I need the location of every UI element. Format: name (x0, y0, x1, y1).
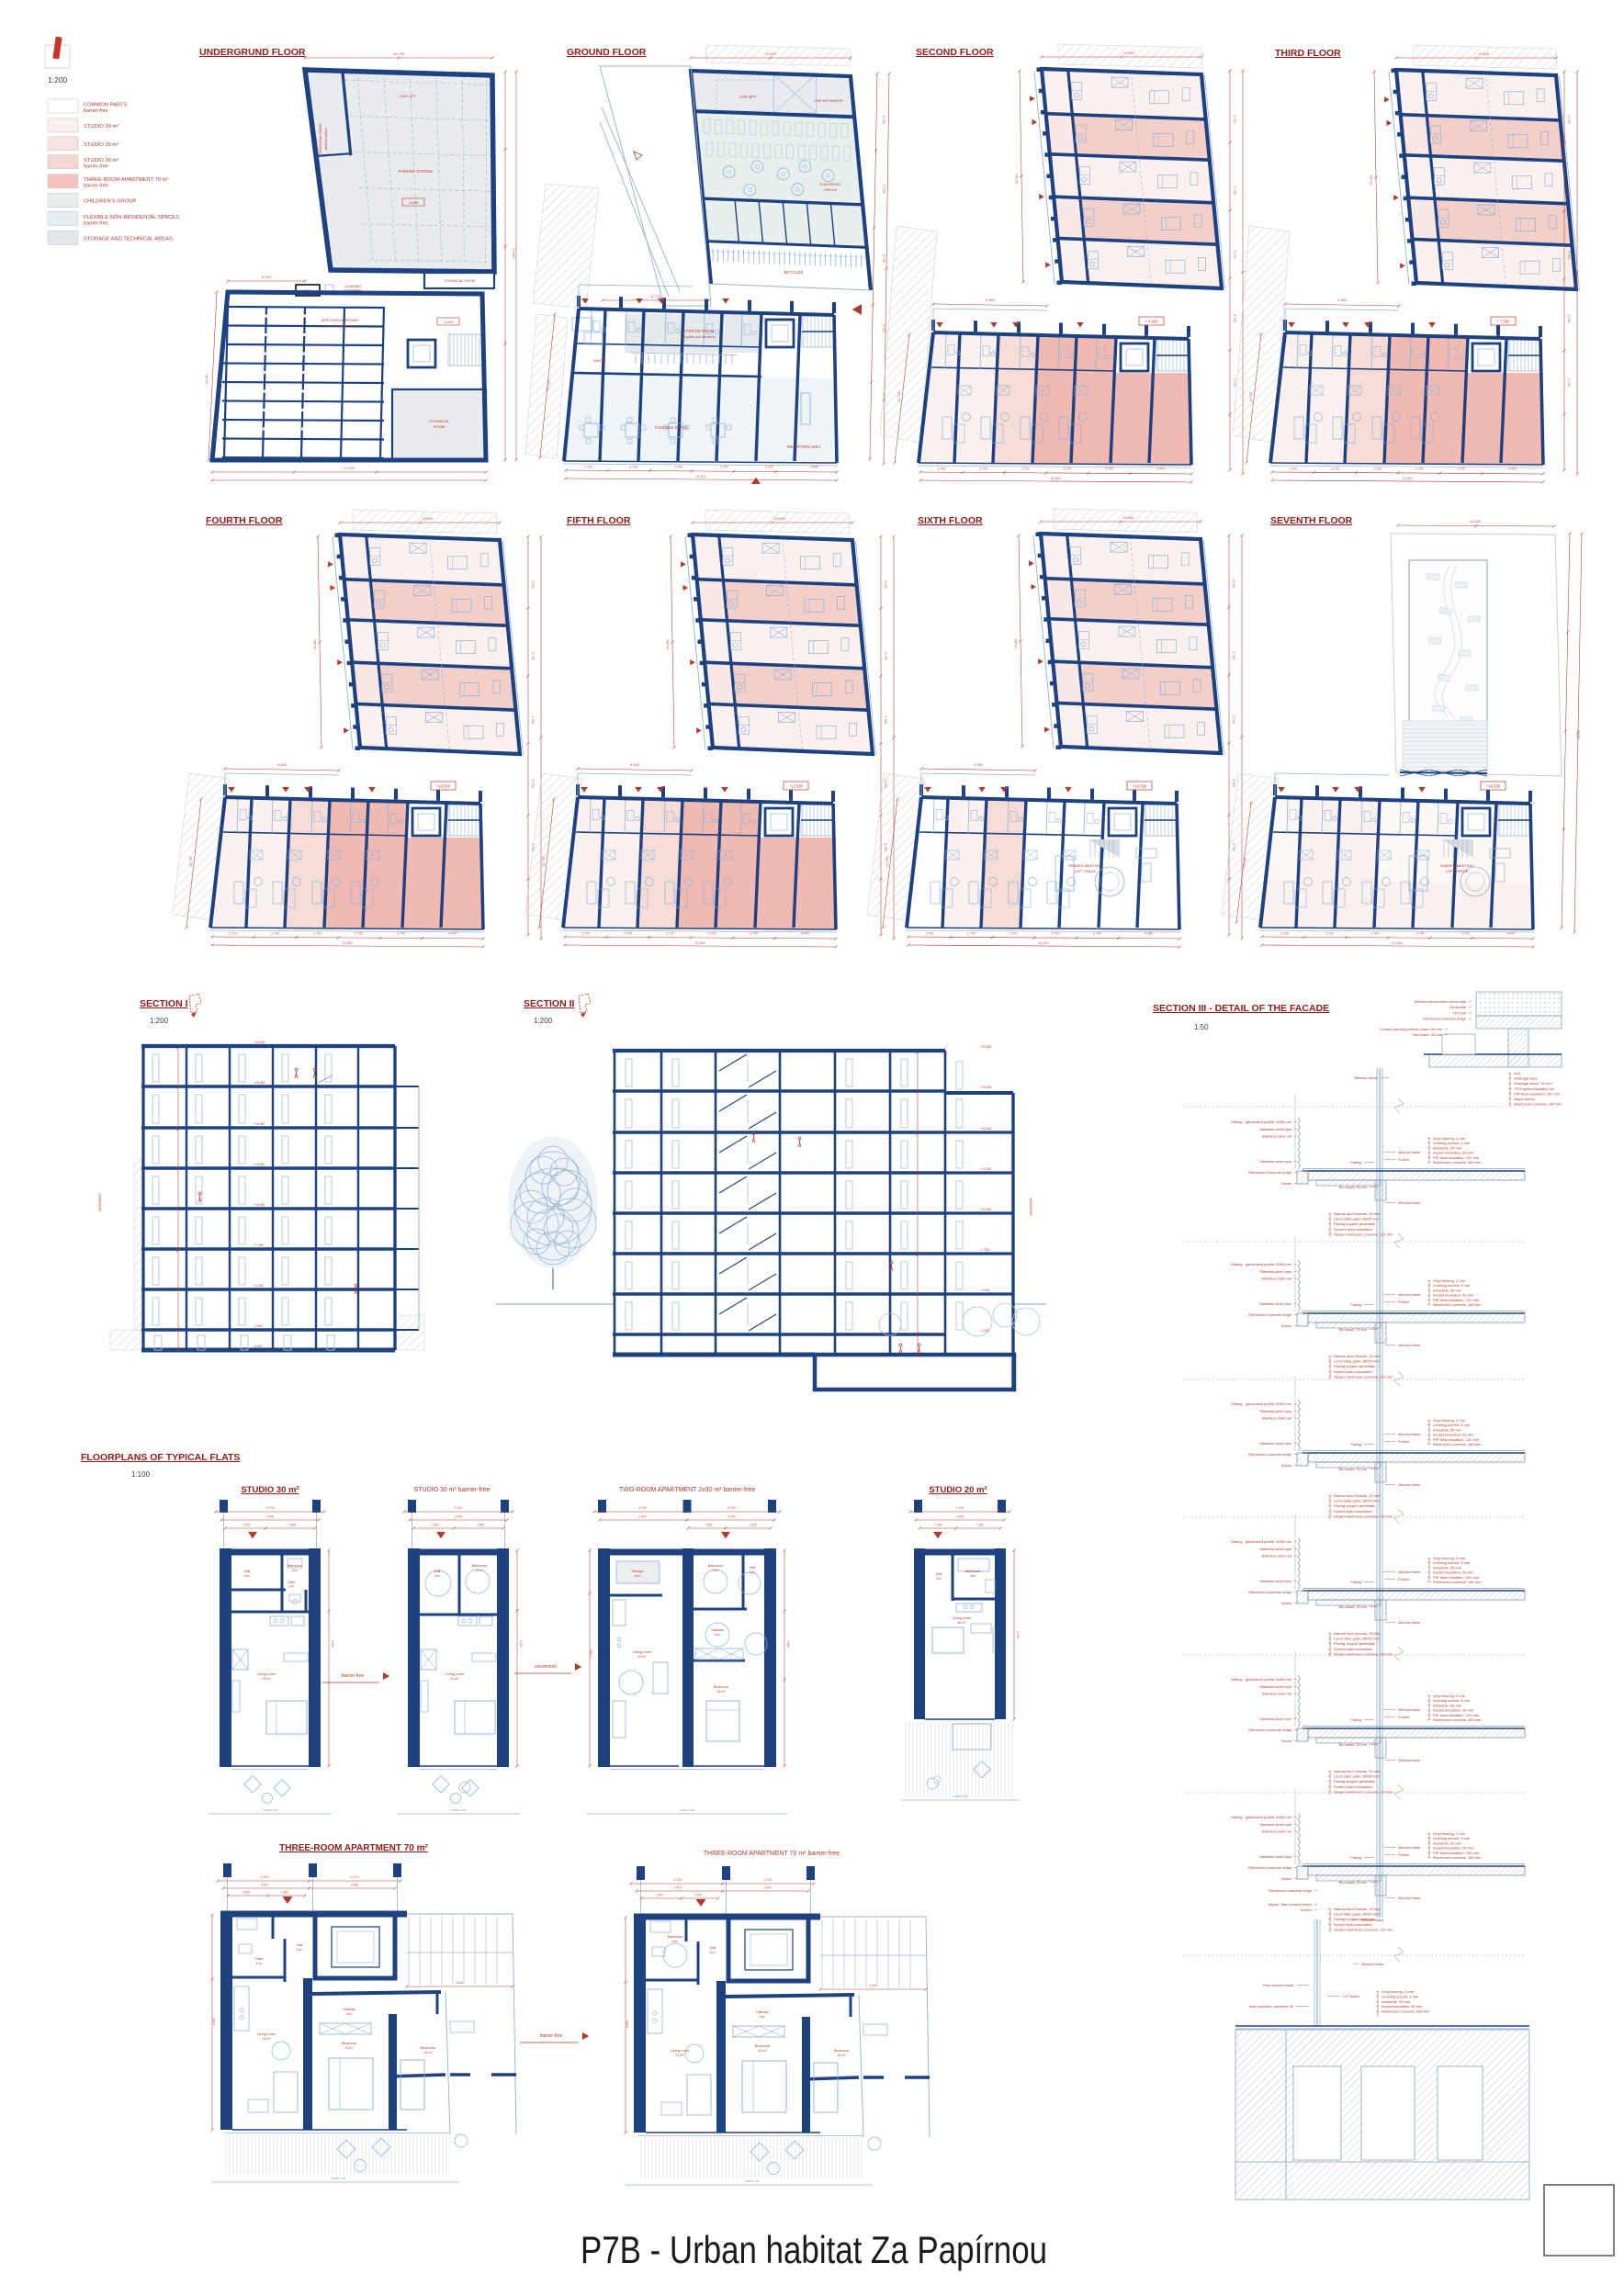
svg-text:+7.300: +7.300 (254, 1244, 264, 1247)
svg-text:3 m²: 3 m² (434, 1574, 442, 1578)
svg-text:Soil: Soil (1514, 1071, 1520, 1075)
svg-text:1.800: 1.800 (656, 1894, 663, 1897)
svg-text:THREE-ROOM APARTMENT 70 m²: THREE-ROOM APARTMENT 70 m² (279, 1843, 428, 1853)
svg-text:3.700: 3.700 (764, 1878, 773, 1882)
svg-text:Reinforced concrete ledge: Reinforced concrete ledge (1248, 1590, 1291, 1594)
svg-text:LOFT SPACE: LOFT SPACE (1446, 869, 1469, 873)
svg-text:14 m²: 14 m² (758, 2049, 767, 2053)
svg-text:Window frame: Window frame (1398, 1759, 1420, 1762)
svg-text:3.700: 3.700 (629, 466, 637, 469)
svg-text:Window frame: Window frame (1398, 1570, 1420, 1574)
svg-text:CHILDREN'S GROUP: CHILDREN'S GROUP (84, 199, 137, 205)
svg-text:CAR LIFT: CAR LIFT (739, 95, 757, 99)
svg-text:13.705: 13.705 (897, 392, 901, 402)
svg-text:22.900: 22.900 (1393, 941, 1403, 945)
svg-text:+13.580: +13.580 (789, 784, 804, 789)
svg-text:LOFT SPACE: LOFT SPACE (1074, 869, 1097, 873)
svg-text:2.615: 2.615 (869, 1984, 876, 1987)
svg-text:TPO hydro-insulation foil: TPO hydro-insulation foil (1514, 1086, 1554, 1091)
svg-text:3.700: 3.700 (1021, 467, 1030, 471)
svg-text:4 m²: 4 m² (710, 1951, 717, 1954)
svg-text:3.700: 3.700 (882, 324, 885, 332)
svg-text:4.450: 4.450 (1016, 1631, 1020, 1638)
svg-text:19.330: 19.330 (1576, 730, 1580, 740)
svg-text:Window frame: Window frame (1398, 1483, 1420, 1487)
svg-text:14.060: 14.060 (205, 374, 209, 384)
svg-text:3.400: 3.400 (266, 1515, 275, 1519)
svg-text:3.700: 3.700 (1461, 932, 1470, 936)
svg-text:16 m²: 16 m² (957, 1621, 966, 1625)
svg-text:3.700: 3.700 (266, 1506, 275, 1510)
svg-text:PIR heat insulation, 200 mm: PIR heat insulation, 200 mm (1514, 1091, 1561, 1096)
svg-text:21.060: 21.060 (1015, 174, 1019, 185)
svg-text:Heat insulation, perimeter 50: Heat insulation, perimeter 50 (1248, 2005, 1293, 2009)
svg-text:3.700: 3.700 (1567, 187, 1571, 196)
svg-text:4 m²: 4 m² (713, 1569, 720, 1572)
svg-text:13.705: 13.705 (189, 857, 193, 867)
svg-text:Window frame: Window frame (1398, 1151, 1420, 1154)
svg-text:4.400: 4.400 (801, 932, 809, 936)
svg-text:3.700: 3.700 (351, 1875, 359, 1879)
svg-text:barrier-free: barrier-free (342, 1673, 365, 1679)
svg-text:RECEPTION AREA: RECEPTION AREA (787, 445, 821, 449)
svg-text:8.745: 8.745 (651, 294, 661, 298)
svg-text:FLOORPLANS OF TYPICAL FLATS: FLOORPLANS OF TYPICAL FLATS (81, 1452, 240, 1463)
svg-text:Topper- fiber cement board: Topper- fiber cement board (1268, 1902, 1312, 1907)
svg-text:STUDIO 30 m²: STUDIO 30 m² (241, 1485, 299, 1495)
svg-text:Stainless steel rope: Stainless steel rope (1259, 1127, 1292, 1131)
svg-text:21.060: 21.060 (666, 640, 670, 650)
svg-text:Stainless steel rope: Stainless steel rope (1259, 1579, 1292, 1583)
svg-text:13.600: 13.600 (1478, 51, 1490, 56)
svg-text:1 m²: 1 m² (256, 1962, 264, 1965)
svg-text:Paving support pedestals: Paving support pedestals (1334, 1641, 1375, 1646)
svg-text:3.700: 3.700 (1416, 932, 1425, 936)
svg-text:1.500: 1.500 (935, 1524, 942, 1527)
svg-text:Bedroom: Bedroom (421, 2045, 436, 2050)
svg-text:WASTE: WASTE (593, 358, 606, 363)
svg-text:CAR LIFT: CAR LIFT (400, 94, 416, 98)
svg-text:Vapor barrier: Vapor barrier (1514, 1097, 1536, 1101)
svg-text:-1.000: -1.000 (254, 1324, 263, 1328)
svg-text:3.700: 3.700 (1457, 467, 1465, 471)
svg-text:Eaves: Eaves (1281, 1463, 1291, 1468)
svg-text:3.700: 3.700 (674, 1878, 682, 1882)
svg-text:Plating: Plating (1350, 1581, 1361, 1584)
svg-text:Reinforced concrete ledge: Reinforced concrete ledge (1248, 1312, 1291, 1317)
svg-text:22.900: 22.900 (696, 475, 706, 478)
svg-text:25 m²: 25 m² (637, 1655, 647, 1659)
svg-text:Sloped reinforced concrete, 12: Sloped reinforced concrete, 120 mm (1334, 1927, 1393, 1931)
svg-text:P7B - Urban habitat Za Papírno: P7B - Urban habitat Za Papírnou (581, 2228, 1047, 2271)
svg-text:Reinforced concrete, 180 mm: Reinforced concrete, 180 mm (1433, 1855, 1482, 1860)
svg-text:Stainless steel net: Stainless steel net (1262, 1416, 1292, 1421)
svg-text:Eaves: Eaves (1281, 1739, 1291, 1743)
svg-text:3.700: 3.700 (1233, 314, 1236, 322)
svg-text:3.700: 3.700 (1280, 932, 1289, 936)
svg-text:Window frame: Window frame (1361, 1919, 1383, 1922)
svg-text:1 m²: 1 m² (288, 1585, 294, 1589)
svg-text:21.060: 21.060 (1370, 175, 1373, 186)
svg-text:22.900: 22.900 (1039, 941, 1049, 945)
svg-text:4 m²: 4 m² (672, 1940, 680, 1943)
svg-text:3.700: 3.700 (1009, 932, 1018, 936)
svg-text:Reinforced concrete ledge: Reinforced concrete ledge (1423, 1017, 1466, 1021)
svg-text:Bathroom: Bathroom (708, 1564, 723, 1568)
svg-text:9.365: 9.365 (630, 762, 640, 767)
svg-text:+10.300: +10.300 (254, 1203, 265, 1207)
svg-text:9.365: 9.365 (974, 762, 984, 767)
svg-text:Purenit: Purenit (1398, 1578, 1410, 1581)
svg-text:8.100: 8.100 (626, 2020, 629, 2028)
svg-text:Hallway: Hallway (711, 1628, 723, 1632)
svg-text:Bio-board, 25 mm: Bio-board, 25 mm (1339, 1605, 1367, 1609)
svg-text:4.400: 4.400 (1145, 932, 1153, 936)
svg-text:4 m²: 4 m² (477, 1569, 484, 1572)
svg-text:Cement bonded particle board,: Cement bonded particle board, 30 mm (1380, 1027, 1443, 1031)
svg-text:Reinforced concrete, 240 mm: Reinforced concrete, 240 mm (1514, 1102, 1562, 1107)
svg-text:4.900: 4.900 (786, 1640, 790, 1648)
svg-text:Hallway: Hallway (756, 2010, 768, 2014)
svg-text:13.600: 13.600 (1122, 515, 1134, 520)
svg-text:Sloped reinforced concrete, 12: Sloped reinforced concrete, 120 mm (1334, 1232, 1393, 1236)
svg-text:Eaves: Eaves (1281, 1181, 1291, 1186)
svg-text:Reinforced concrete, 180 mm: Reinforced concrete, 180 mm (1433, 1442, 1482, 1446)
svg-text:Bio-board, 25 mm: Bio-board, 25 mm (1339, 1743, 1367, 1747)
svg-text:Drainage stone, 50 mm: Drainage stone, 50 mm (1514, 1081, 1552, 1086)
svg-text:+16.560: +16.560 (1133, 784, 1147, 789)
svg-text:7.150: 7.150 (590, 1649, 593, 1657)
svg-text:Natural larch boards, 25 mm: Natural larch boards, 25 mm (1334, 1907, 1381, 1911)
svg-text:3.400: 3.400 (956, 1515, 964, 1519)
svg-text:+7.300: +7.300 (980, 1248, 990, 1252)
svg-text:+10.600: +10.600 (436, 784, 451, 789)
svg-text:Stainless steel net: Stainless steel net (1262, 1134, 1292, 1139)
svg-text:1.800: 1.800 (976, 1524, 984, 1527)
svg-text:Window frame: Window frame (1398, 1846, 1420, 1850)
svg-text:STREET LINE: STREET LINE (744, 2179, 760, 2183)
svg-text:4.400: 4.400 (1506, 932, 1515, 936)
svg-text:3.700: 3.700 (1567, 251, 1571, 259)
svg-text:+19.300: +19.300 (980, 1086, 991, 1089)
svg-text:3.700: 3.700 (1567, 378, 1571, 387)
svg-text:+16.300: +16.300 (254, 1122, 265, 1126)
svg-text:3.700: 3.700 (1232, 779, 1235, 787)
svg-text:THREE-ROOM APARTMENT 70 m²: THREE-ROOM APARTMENT 70 m² (84, 177, 169, 183)
svg-text:Plating: Plating (1350, 1161, 1361, 1165)
svg-text:3.400: 3.400 (674, 1886, 682, 1890)
svg-text:3.700: 3.700 (584, 466, 592, 469)
svg-text:5 m²: 5 m² (760, 2015, 767, 2019)
svg-text:3.400: 3.400 (727, 1515, 736, 1519)
svg-text:+13.300: +13.300 (980, 1167, 991, 1171)
svg-text:Screed hydro-insulation: Screed hydro-insulation (1334, 1784, 1372, 1789)
svg-text:3.700: 3.700 (750, 932, 758, 936)
svg-text:Leveling screed, 3 mm: Leveling screed, 3 mm (1382, 1994, 1419, 1998)
svg-text:Bedroom: Bedroom (714, 1684, 729, 1689)
svg-text:16.755: 16.755 (393, 51, 405, 56)
svg-text:+10.300: +10.300 (980, 1208, 991, 1211)
svg-text:3.700: 3.700 (956, 1506, 964, 1510)
svg-text:ROOM: ROOM (434, 424, 445, 429)
svg-text:SIXTH FLOOR: SIXTH FLOOR (918, 515, 983, 526)
svg-text:Larch slats grate, 60/60 mm: Larch slats grate, 60/60 mm (1334, 1637, 1380, 1641)
svg-text:SECTION III - DETAIL OF THE FA: SECTION III - DETAIL OF THE FACADE (1153, 1003, 1329, 1014)
svg-text:Bathroom: Bathroom (668, 1935, 682, 1939)
svg-text:3.700: 3.700 (1232, 651, 1235, 659)
svg-text:STREET LINE: STREET LINE (451, 1808, 467, 1812)
svg-text:Living room: Living room (445, 1671, 465, 1676)
svg-text:Stainless steel rope: Stainless steel rope (1259, 1409, 1292, 1413)
svg-text:3.700: 3.700 (638, 1506, 647, 1510)
svg-text:NEIGHBOUR: NEIGHBOUR (1029, 1198, 1032, 1216)
svg-text:2 m²: 2 m² (292, 1569, 299, 1572)
svg-text:8.100: 8.100 (212, 2018, 216, 2025)
svg-text:Natural larch boards, 25 mm: Natural larch boards, 25 mm (1334, 1211, 1381, 1216)
svg-text:(bicycles and strollers): (bicycles and strollers) (681, 335, 716, 339)
svg-text:2.615: 2.615 (456, 1981, 463, 1985)
svg-text:Window frame: Window frame (1398, 1708, 1420, 1712)
svg-text:9.365: 9.365 (986, 298, 996, 302)
svg-text:3.700: 3.700 (1567, 116, 1571, 124)
svg-text:3.700: 3.700 (1370, 932, 1379, 936)
svg-text:6.900: 6.900 (331, 1640, 334, 1648)
svg-text:GROUP: GROUP (824, 187, 838, 192)
svg-text:21.060: 21.060 (1014, 639, 1018, 649)
svg-text:4 m²: 4 m² (297, 1948, 304, 1952)
svg-text:4.400: 4.400 (1156, 467, 1165, 471)
svg-text:Bedroom: Bedroom (342, 2041, 357, 2045)
svg-text:3.700: 3.700 (937, 467, 945, 471)
svg-text:Stainless steel net: Stainless steel net (1262, 1554, 1292, 1559)
svg-text:+ 7.590: + 7.590 (1496, 320, 1510, 324)
svg-text:23.960: 23.960 (512, 249, 515, 259)
svg-text:Purenit: Purenit (1398, 1853, 1410, 1857)
svg-text:+23.000: +23.000 (254, 1041, 265, 1044)
svg-text:Screed hydro-insulation: Screed hydro-insulation (1334, 1922, 1372, 1927)
svg-text:3.700: 3.700 (925, 932, 933, 936)
svg-text:3.700: 3.700 (674, 466, 682, 469)
svg-text:4 m²: 4 m² (244, 1574, 252, 1578)
svg-text:21.060: 21.060 (313, 640, 317, 650)
svg-text:Stainless steel rope: Stainless steel rope (1259, 1269, 1292, 1274)
svg-text:Bio-board, 25 mm: Bio-board, 25 mm (1339, 1468, 1367, 1471)
svg-text:Reinforced concrete ledge: Reinforced concrete ledge (1269, 1888, 1312, 1893)
svg-text:Bio-board, 25 mm: Bio-board, 25 mm (1413, 1032, 1442, 1037)
svg-text:SECOND FLOOR: SECOND FLOOR (916, 47, 994, 58)
svg-text:45 STORAGE ROOMS: 45 STORAGE ROOMS (321, 318, 359, 322)
svg-text:FIFTH FLOOR: FIFTH FLOOR (567, 515, 631, 526)
svg-text:Bathroom: Bathroom (965, 1570, 980, 1573)
svg-text:CAR ENTRANCE: CAR ENTRANCE (814, 98, 843, 103)
svg-text:1:200: 1:200 (534, 1017, 553, 1025)
svg-text:Screed hydro-insulation: Screed hydro-insulation (1334, 1369, 1372, 1374)
svg-text:FOURTH FLOOR: FOURTH FLOOR (206, 515, 283, 526)
svg-text:NEIGHBOUR: NEIGHBOUR (98, 1193, 102, 1211)
svg-text:13.600: 13.600 (1123, 51, 1135, 55)
svg-text:22.900: 22.900 (695, 941, 705, 945)
svg-text:Hall: Hall (710, 1946, 716, 1950)
svg-text:Bio-board, 25 mm: Bio-board, 25 mm (1339, 1328, 1367, 1332)
svg-text:TWO-ROOM APARTMENT 2x30 m² bar: TWO-ROOM APARTMENT 2x30 m² barrier-free (619, 1487, 755, 1493)
svg-text:3.700: 3.700 (531, 580, 535, 589)
svg-text:Railing - galvanized profile 1: Railing - galvanized profile 10/60 mm (1231, 1815, 1291, 1819)
svg-text:5.910: 5.910 (262, 275, 272, 279)
svg-text:1:200: 1:200 (150, 1017, 169, 1025)
svg-text:21.400: 21.400 (344, 467, 355, 470)
svg-text:Eaves: Eaves (1281, 1876, 1291, 1881)
svg-text:3.700: 3.700 (1325, 932, 1334, 936)
svg-text:22.900: 22.900 (1051, 477, 1061, 480)
svg-text:barrier-free: barrier-free (84, 184, 108, 189)
svg-text:FLEXIBLE SPACE: FLEXIBLE SPACE (655, 425, 688, 430)
svg-text:+19.300: +19.300 (254, 1081, 265, 1085)
svg-text:STREET LINE: STREET LINE (331, 2177, 346, 2180)
svg-text:1.800: 1.800 (242, 1891, 250, 1895)
svg-text:Railing - galvanized profile 1: Railing - galvanized profile 10/60 mm (1231, 1262, 1291, 1266)
svg-text:4.400: 4.400 (448, 932, 457, 936)
svg-text:Paving support pedestals: Paving support pedestals (1334, 1503, 1375, 1508)
svg-text:21 m²: 21 m² (675, 2054, 684, 2057)
svg-text:3.400: 3.400 (351, 1884, 359, 1887)
svg-text:12.650: 12.650 (1470, 519, 1482, 523)
svg-text:TECHNICAL: TECHNICAL (429, 419, 450, 423)
svg-text:3.700: 3.700 (1233, 115, 1236, 123)
svg-text:Impact insulation, 50 mm: Impact insulation, 50 mm (1382, 2004, 1423, 2009)
svg-text:3.400: 3.400 (455, 1515, 463, 1519)
svg-text:+19.530: +19.530 (1486, 784, 1501, 789)
svg-text:Window frame: Window frame (1398, 1344, 1420, 1347)
svg-text:Railing - galvanized profile 1: Railing - galvanized profile 10/60 mm (1231, 1677, 1291, 1682)
svg-text:Stainless steel net: Stainless steel net (1262, 1692, 1292, 1696)
svg-text:Paving support pedestals: Paving support pedestals (1334, 1364, 1375, 1368)
svg-text:1:50: 1:50 (1194, 1023, 1209, 1031)
svg-text:+ 4.930: + 4.930 (1145, 320, 1158, 324)
svg-text:1.500: 1.500 (432, 1524, 439, 1527)
svg-text:16 m²: 16 m² (716, 1690, 726, 1694)
svg-text:23 m²: 23 m² (262, 1677, 271, 1681)
svg-text:Reinforced concrete, 330 mm: Reinforced concrete, 330 mm (1382, 2009, 1430, 2014)
svg-text:STUDIO 20 m²: STUDIO 20 m² (84, 124, 118, 129)
svg-text:THREE-ROOM APARTMENT 70 m² bar: THREE-ROOM APARTMENT 70 m² barrier-free (704, 1851, 840, 1857)
svg-text:STREET LINE: STREET LINE (680, 1808, 695, 1812)
svg-text:3.700: 3.700 (884, 580, 887, 589)
svg-text:Bio-board, 25 mm: Bio-board, 25 mm (1339, 1186, 1367, 1189)
svg-text:COMMON PARTS: COMMON PARTS (84, 103, 128, 108)
svg-text:Hall: Hall (244, 1570, 251, 1573)
svg-text:Geotextile: Geotextile (1449, 1005, 1467, 1009)
svg-text:3 m²: 3 m² (936, 1577, 943, 1581)
svg-text:Natural larch boards, 25 mm: Natural larch boards, 25 mm (1334, 1493, 1381, 1498)
svg-text:3.700: 3.700 (1052, 932, 1060, 936)
svg-text:3.700: 3.700 (884, 715, 887, 724)
svg-text:Paving support pedestals: Paving support pedestals (1334, 1779, 1375, 1784)
svg-text:Stainless steel rope: Stainless steel rope (1259, 1441, 1292, 1446)
svg-text:-4.250: -4.250 (408, 200, 419, 205)
svg-text:STREET LINE: STREET LINE (953, 1795, 968, 1798)
svg-text:Larch slats grate, 60/60 mm: Larch slats grate, 60/60 mm (1334, 1774, 1380, 1779)
svg-text:Reinforced concrete, 180 mm: Reinforced concrete, 180 mm (1433, 1302, 1482, 1307)
svg-text:Larch slats grate, 60/60 mm: Larch slats grate, 60/60 mm (1334, 1499, 1380, 1503)
svg-text:4.400: 4.400 (1508, 467, 1517, 471)
svg-text:conversion: conversion (535, 1664, 557, 1670)
svg-text:Sloped reinforced concrete, 12: Sloped reinforced concrete, 120 mm (1334, 1651, 1393, 1656)
svg-text:Reinforced concrete, 180 mm: Reinforced concrete, 180 mm (1433, 1580, 1482, 1584)
svg-text:1.500: 1.500 (694, 1894, 702, 1897)
svg-text:Sloped reinforced concrete, 12: Sloped reinforced concrete, 120 mm (1334, 1374, 1393, 1379)
svg-text:SECTION II: SECTION II (524, 998, 575, 1009)
svg-text:3.700: 3.700 (1064, 467, 1072, 471)
svg-text:Fiber cement board: Fiber cement board (1263, 1984, 1293, 1987)
svg-text:1:100: 1:100 (131, 1470, 151, 1479)
svg-text:Living room: Living room (633, 1649, 652, 1654)
svg-text:+13.300: +13.300 (254, 1163, 265, 1166)
svg-text:Paving support pedestals: Paving support pedestals (1334, 1221, 1375, 1226)
svg-text:PARKING SYSTEM: PARKING SYSTEM (399, 169, 433, 174)
svg-text:(incl. 30 barrier-free): (incl. 30 barrier-free) (325, 324, 355, 328)
svg-text:Reinforced concrete ledge: Reinforced concrete ledge (1248, 1170, 1291, 1175)
svg-text:-3.200: -3.200 (443, 320, 454, 324)
svg-text:13.705: 13.705 (542, 857, 546, 867)
svg-text:Bathroom: Bathroom (288, 1564, 302, 1568)
svg-text:1.800: 1.800 (705, 1524, 712, 1527)
svg-text:3.700: 3.700 (882, 254, 885, 263)
svg-text:14 m²: 14 m² (262, 2037, 271, 2041)
svg-text:Natural larch boards, 25 mm: Natural larch boards, 25 mm (1334, 1354, 1381, 1358)
svg-text:3.700: 3.700 (531, 652, 535, 660)
svg-text:3.700: 3.700 (979, 467, 987, 471)
svg-text:Drainage layer: Drainage layer (1514, 1076, 1539, 1081)
svg-text:Hall: Hall (297, 1943, 303, 1947)
svg-text:Purenit: Purenit (1398, 1300, 1410, 1304)
svg-text:Stainless steel rope: Stainless steel rope (1259, 1684, 1292, 1689)
svg-text:Larch slats grate, 60/60 mm: Larch slats grate, 60/60 mm (1334, 1912, 1380, 1917)
svg-text:Hallway: Hallway (343, 2008, 355, 2011)
svg-text:3.700: 3.700 (1093, 932, 1101, 936)
svg-text:Hall: Hall (434, 1570, 441, 1573)
svg-text:STORAGE ROOM: STORAGE ROOM (682, 329, 715, 333)
svg-text:1:200: 1:200 (48, 75, 68, 84)
svg-text:3.700: 3.700 (229, 932, 237, 936)
svg-text:Stainless steel net: Stainless steel net (1262, 1829, 1292, 1834)
svg-text:3.700: 3.700 (261, 1875, 269, 1879)
svg-text:3.700: 3.700 (1232, 715, 1235, 724)
svg-text:Railing - galvanized profile 1: Railing - galvanized profile 10/60 mm (1231, 1539, 1291, 1544)
svg-text:barrier-free: barrier-free (84, 220, 108, 226)
svg-text:STUDIO 30 m² barrier-free: STUDIO 30 m² barrier-free (414, 1487, 491, 1493)
svg-text:Purenit: Purenit (1398, 1716, 1410, 1719)
svg-text:3.700: 3.700 (581, 932, 590, 936)
svg-text:1.500: 1.500 (750, 1524, 757, 1527)
svg-text:3.700: 3.700 (455, 1506, 463, 1510)
svg-text:3.700: 3.700 (531, 780, 535, 788)
svg-text:22.900: 22.900 (1403, 477, 1413, 480)
svg-text:13.600: 13.600 (765, 51, 777, 56)
svg-text:1.800: 1.800 (288, 1524, 296, 1527)
svg-text:3.700: 3.700 (531, 715, 535, 724)
svg-text:Window frame: Window frame (1398, 1433, 1420, 1436)
svg-text:CLEANING: CLEANING (344, 285, 362, 288)
svg-text:Screed hydro-insulation: Screed hydro-insulation (1334, 1509, 1372, 1514)
svg-text:Window frame: Window frame (1398, 1293, 1420, 1297)
svg-text:Natural larch boards, 25 mm: Natural larch boards, 25 mm (1334, 1631, 1381, 1636)
svg-text:Hall: Hall (936, 1572, 942, 1576)
svg-text:Vinyl flooring, 2 mm: Vinyl flooring, 2 mm (1382, 1989, 1415, 1994)
svg-text:3.700: 3.700 (1289, 467, 1297, 471)
svg-text:parking system: parking system (324, 128, 328, 150)
svg-text:Bedroom: Bedroom (834, 2048, 850, 2053)
svg-text:Reinforced concrete corner wal: Reinforced concrete corner wall (1415, 999, 1466, 1004)
